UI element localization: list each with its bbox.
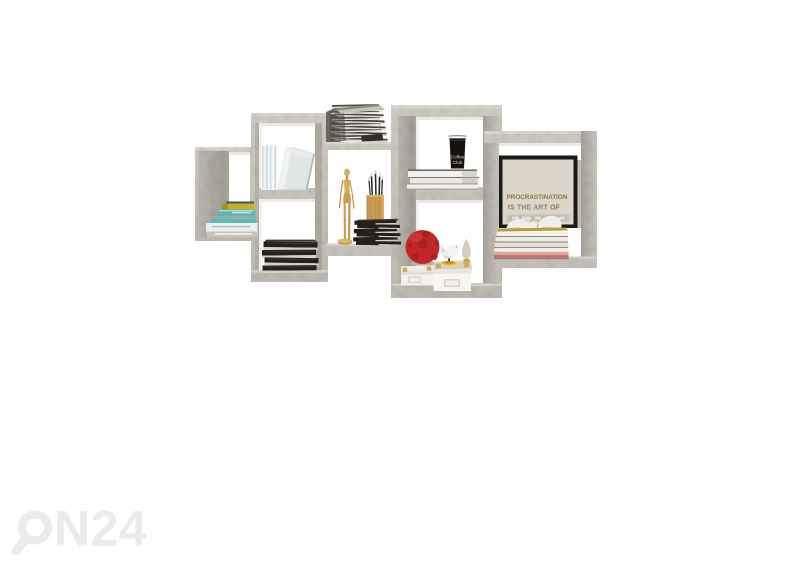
svg-text:N24: N24 bbox=[54, 501, 147, 557]
svg-text:Club: Club bbox=[453, 160, 463, 165]
svg-text:IS THE ART OF: IS THE ART OF bbox=[508, 205, 560, 212]
svg-text:Coffee: Coffee bbox=[451, 155, 465, 160]
svg-text:PROCRASTINATION: PROCRASTINATION bbox=[507, 194, 568, 201]
